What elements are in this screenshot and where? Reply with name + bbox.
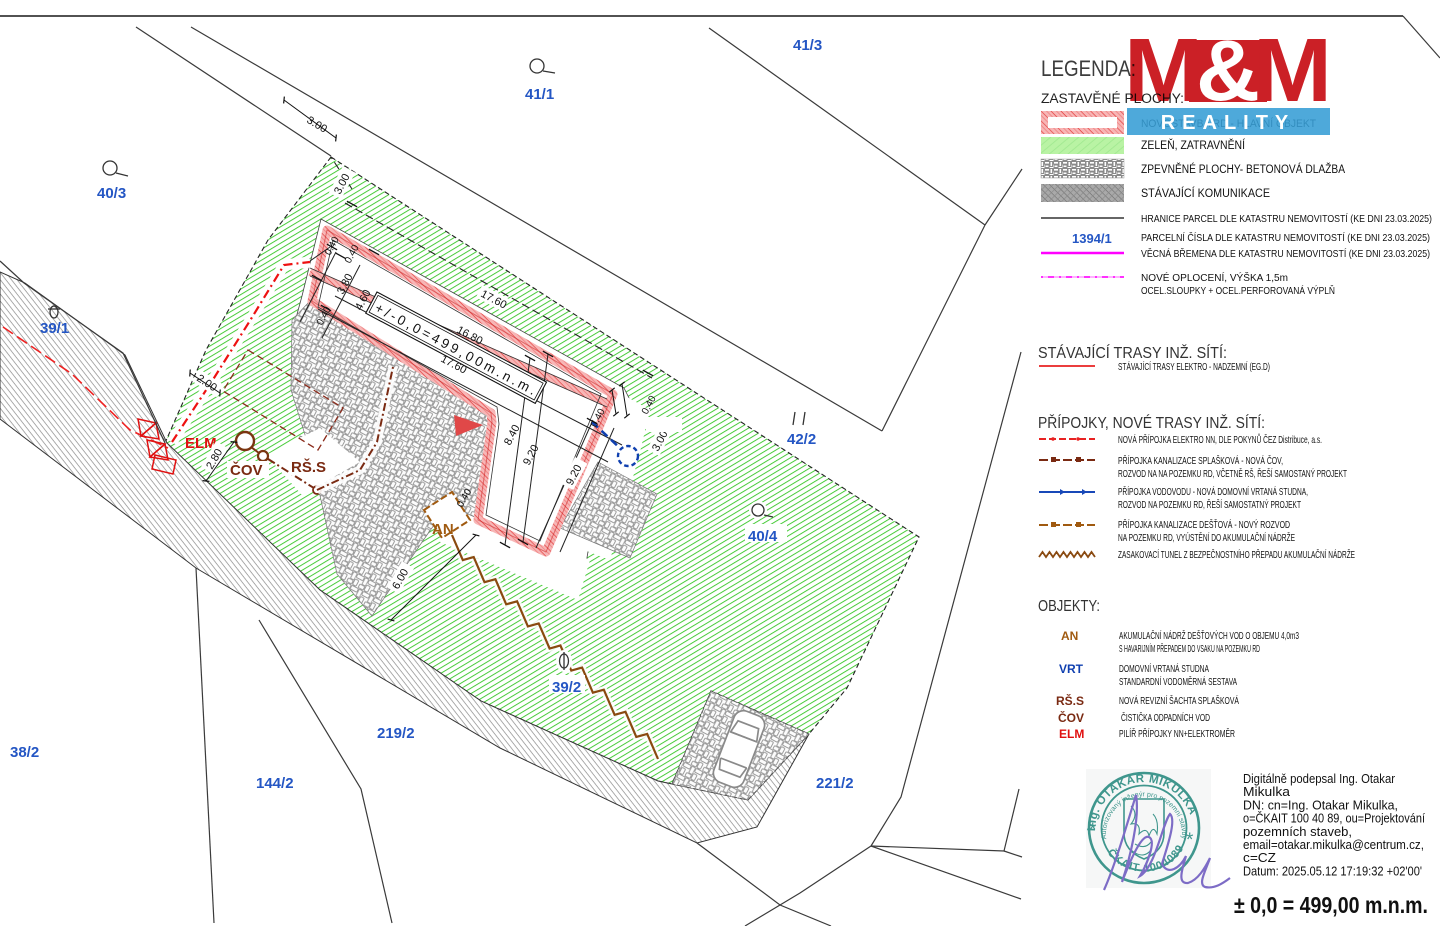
svg-text:Datum: 2025.05.12 17:19:32 +02: Datum: 2025.05.12 17:19:32 +02'00' xyxy=(1243,863,1422,878)
svg-text:NOVÁ REVIZNÍ ŠACHTA SPLAŠKOVÁ: NOVÁ REVIZNÍ ŠACHTA SPLAŠKOVÁ xyxy=(1119,694,1239,707)
svg-text:STÁVAJÍCÍ TRASY INŽ. SÍTÍ:: STÁVAJÍCÍ TRASY INŽ. SÍTÍ: xyxy=(1038,345,1227,362)
svg-text:ČISTIČKA ODPADNÍCH VOD: ČISTIČKA ODPADNÍCH VOD xyxy=(1121,711,1210,724)
svg-text:AN: AN xyxy=(1061,629,1078,643)
svg-text:PILÍŘ PŘÍPOJKY NN+ELEKTROMĚR: PILÍŘ PŘÍPOJKY NN+ELEKTROMĚR xyxy=(1119,727,1235,740)
svg-text:39/2: 39/2 xyxy=(552,679,581,696)
svg-text:NA POZEMKU RD, VYÚSTĚNÍ DO AKU: NA POZEMKU RD, VYÚSTĚNÍ DO AKUMULAČNÍ NÁ… xyxy=(1118,531,1295,544)
svg-text:40/3: 40/3 xyxy=(97,185,126,202)
svg-text:HRANICE PARCEL DLE KATASTRU NE: HRANICE PARCEL DLE KATASTRU NEMOVITOSTÍ … xyxy=(1141,212,1432,225)
svg-text:PARCELNÍ ČÍSLA DLE KATASTRU NE: PARCELNÍ ČÍSLA DLE KATASTRU NEMOVITOSTÍ … xyxy=(1141,231,1430,244)
svg-text:AN: AN xyxy=(432,521,454,538)
svg-text:RŠ.S: RŠ.S xyxy=(291,458,326,476)
svg-text:M: M xyxy=(1253,21,1332,121)
svg-text:ROZVOD NA POZEMKU RD, ŘEŠÍ SAM: ROZVOD NA POZEMKU RD, ŘEŠÍ SAMOSTATNÝ PR… xyxy=(1118,498,1301,511)
svg-text:41/3: 41/3 xyxy=(793,37,822,54)
svg-text:219/2: 219/2 xyxy=(377,725,415,742)
svg-text:*: * xyxy=(1089,820,1097,841)
svg-text:PŘÍPOJKA VODOVODU - NOVÁ DOMOV: PŘÍPOJKA VODOVODU - NOVÁ DOMOVNÍ VRTANÁ … xyxy=(1118,485,1308,498)
svg-text:VRT: VRT xyxy=(1059,662,1084,676)
svg-text:PŘÍPOJKA KANALIZACE DEŠŤOVÁ -: PŘÍPOJKA KANALIZACE DEŠŤOVÁ - NOVÝ ROZVO… xyxy=(1118,518,1290,531)
svg-text:STÁVAJÍCÍ TRASY ELEKTRO - NADZ: STÁVAJÍCÍ TRASY ELEKTRO - NADZEMNÍ (EG.D… xyxy=(1118,360,1270,373)
svg-text:221/2: 221/2 xyxy=(816,775,854,792)
svg-text:ČOV: ČOV xyxy=(1058,710,1084,725)
svg-text:ELM: ELM xyxy=(1059,727,1084,741)
svg-text:NOVÁ PŘÍPOJKA ELEKTRO NN, DLE: NOVÁ PŘÍPOJKA ELEKTRO NN, DLE POKYNŮ ČEZ… xyxy=(1118,433,1322,446)
svg-text:144/2: 144/2 xyxy=(256,775,294,792)
svg-text:42/2: 42/2 xyxy=(787,431,816,448)
svg-text:VĚCNÁ BŘEMENA DLE KATASTRU NEM: VĚCNÁ BŘEMENA DLE KATASTRU NEMOVITOSTÍ (… xyxy=(1141,247,1430,260)
svg-text:38/2: 38/2 xyxy=(10,744,39,761)
svg-text:&: & xyxy=(1196,23,1260,119)
svg-text:ZASAKOVACÍ TUNEL Z BEZPEČNOSTN: ZASAKOVACÍ TUNEL Z BEZPEČNOSTNÍHO PŘEPAD… xyxy=(1118,548,1355,561)
svg-text:41/1: 41/1 xyxy=(525,86,554,103)
svg-text:RŠ.S: RŠ.S xyxy=(1056,693,1084,708)
svg-text:1394/1: 1394/1 xyxy=(1072,231,1112,246)
svg-text:39/1: 39/1 xyxy=(40,320,69,337)
svg-text:AKUMULAČNÍ NÁDRŽ DEŠŤOVÝCH VOD: AKUMULAČNÍ NÁDRŽ DEŠŤOVÝCH VOD O OBJEMU … xyxy=(1119,629,1299,642)
svg-text:M: M xyxy=(1124,21,1203,121)
svg-text:*: * xyxy=(1186,830,1194,851)
svg-text:PŘÍPOJKA KANALIZACE SPLAŠKOVÁ: PŘÍPOJKA KANALIZACE SPLAŠKOVÁ - NOVÁ ČOV… xyxy=(1118,454,1283,467)
svg-text:DOMOVNÍ VRTANÁ STUDNA: DOMOVNÍ VRTANÁ STUDNA xyxy=(1119,662,1209,675)
svg-text:OCEL.SLOUPKY + OCEL.PERFOROVAN: OCEL.SLOUPKY + OCEL.PERFOROVANÁ VÝPLŇ xyxy=(1141,284,1335,297)
svg-text:LEGENDA:: LEGENDA: xyxy=(1041,56,1136,81)
svg-text:40/4: 40/4 xyxy=(748,528,778,545)
svg-text:NOVÉ OPLOCENÍ, VÝŠKA 1,5m: NOVÉ OPLOCENÍ, VÝŠKA 1,5m xyxy=(1141,271,1288,284)
svg-text:± 0,0 = 499,00 m.n.m.: ± 0,0 = 499,00 m.n.m. xyxy=(1234,892,1428,918)
svg-text:OBJEKTY:: OBJEKTY: xyxy=(1038,598,1100,615)
svg-text:ROZVOD NA NA POZEMKU RD, VČETN: ROZVOD NA NA POZEMKU RD, VČETNĚ RŠ, ŘEŠÍ… xyxy=(1118,467,1347,480)
svg-text:ZELEŇ, ZATRAVNĚNÍ: ZELEŇ, ZATRAVNĚNÍ xyxy=(1141,139,1246,152)
svg-text:REALITY: REALITY xyxy=(1161,112,1296,134)
svg-text:STÁVAJÍCÍ KOMUNIKACE: STÁVAJÍCÍ KOMUNIKACE xyxy=(1141,187,1270,200)
svg-text:PŘÍPOJKY, NOVÉ TRASY INŽ. SÍTÍ: PŘÍPOJKY, NOVÉ TRASY INŽ. SÍTÍ: xyxy=(1038,415,1265,432)
svg-text:STANDARDNÍ VODOMĚRNÁ SESTAVA: STANDARDNÍ VODOMĚRNÁ SESTAVA xyxy=(1119,675,1237,688)
svg-text:ČOV: ČOV xyxy=(230,461,263,479)
svg-text:S HAVARIJNÍM PŘEPADEM DO VSAKU: S HAVARIJNÍM PŘEPADEM DO VSAKU NA POZEMK… xyxy=(1119,642,1260,655)
svg-text:ZPEVNĚNÉ PLOCHY- BETONOVÁ DLAŽ: ZPEVNĚNÉ PLOCHY- BETONOVÁ DLAŽBA xyxy=(1141,163,1345,176)
